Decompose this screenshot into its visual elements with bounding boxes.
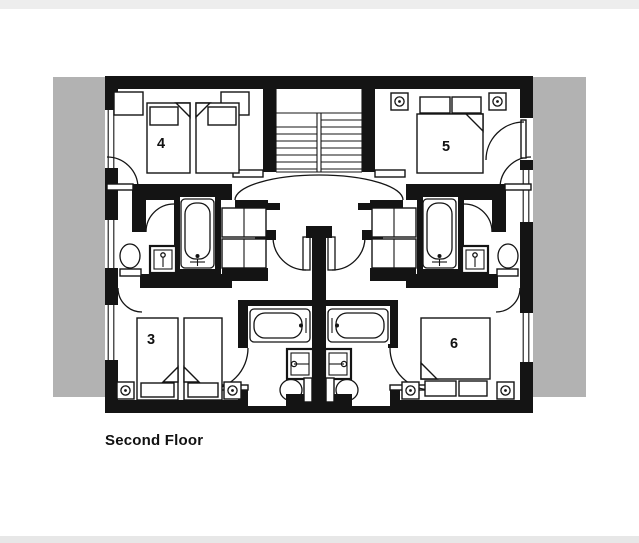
ceiling-light-icon xyxy=(489,93,506,110)
window xyxy=(520,170,533,222)
bedside-table xyxy=(114,92,143,115)
sink xyxy=(462,246,488,273)
pillow xyxy=(150,107,178,125)
pillow xyxy=(208,107,236,125)
double-bed xyxy=(421,318,490,396)
ceiling-light-icon xyxy=(224,382,241,399)
room-number-4: 4 xyxy=(157,136,165,152)
door-leaf xyxy=(521,120,526,158)
pillow xyxy=(452,97,481,113)
window xyxy=(105,305,118,360)
pillow xyxy=(425,381,456,396)
door-leaf xyxy=(505,184,531,190)
floor-plan-page: 4 5 3 6 Second Floor xyxy=(0,0,639,543)
single-bed xyxy=(147,103,190,173)
window xyxy=(105,220,118,268)
room-number-6: 6 xyxy=(450,336,458,352)
single-bed xyxy=(196,103,239,173)
ceiling-light-icon xyxy=(117,382,134,399)
pillow xyxy=(141,383,174,397)
window xyxy=(520,313,533,362)
top-strip xyxy=(0,0,639,9)
double-bed xyxy=(417,97,483,173)
window xyxy=(105,110,118,168)
single-bed xyxy=(184,318,222,400)
door-leaf xyxy=(375,170,405,177)
pillow xyxy=(420,97,450,113)
ceiling-light-icon xyxy=(402,382,419,399)
ceiling-light-icon xyxy=(497,382,514,399)
bottom-strip xyxy=(0,536,639,543)
pillow xyxy=(459,381,487,396)
sink xyxy=(150,246,176,273)
single-bed xyxy=(137,318,178,400)
room-number-5: 5 xyxy=(442,139,450,155)
floor-title: Second Floor xyxy=(105,432,203,449)
pillow xyxy=(188,383,218,397)
sink xyxy=(287,349,313,379)
door-leaf xyxy=(107,184,133,190)
sink xyxy=(325,349,351,379)
room-number-3: 3 xyxy=(147,332,155,348)
floor-plan-drawing: 4 5 3 6 xyxy=(0,0,639,543)
ceiling-light-icon xyxy=(391,93,408,110)
